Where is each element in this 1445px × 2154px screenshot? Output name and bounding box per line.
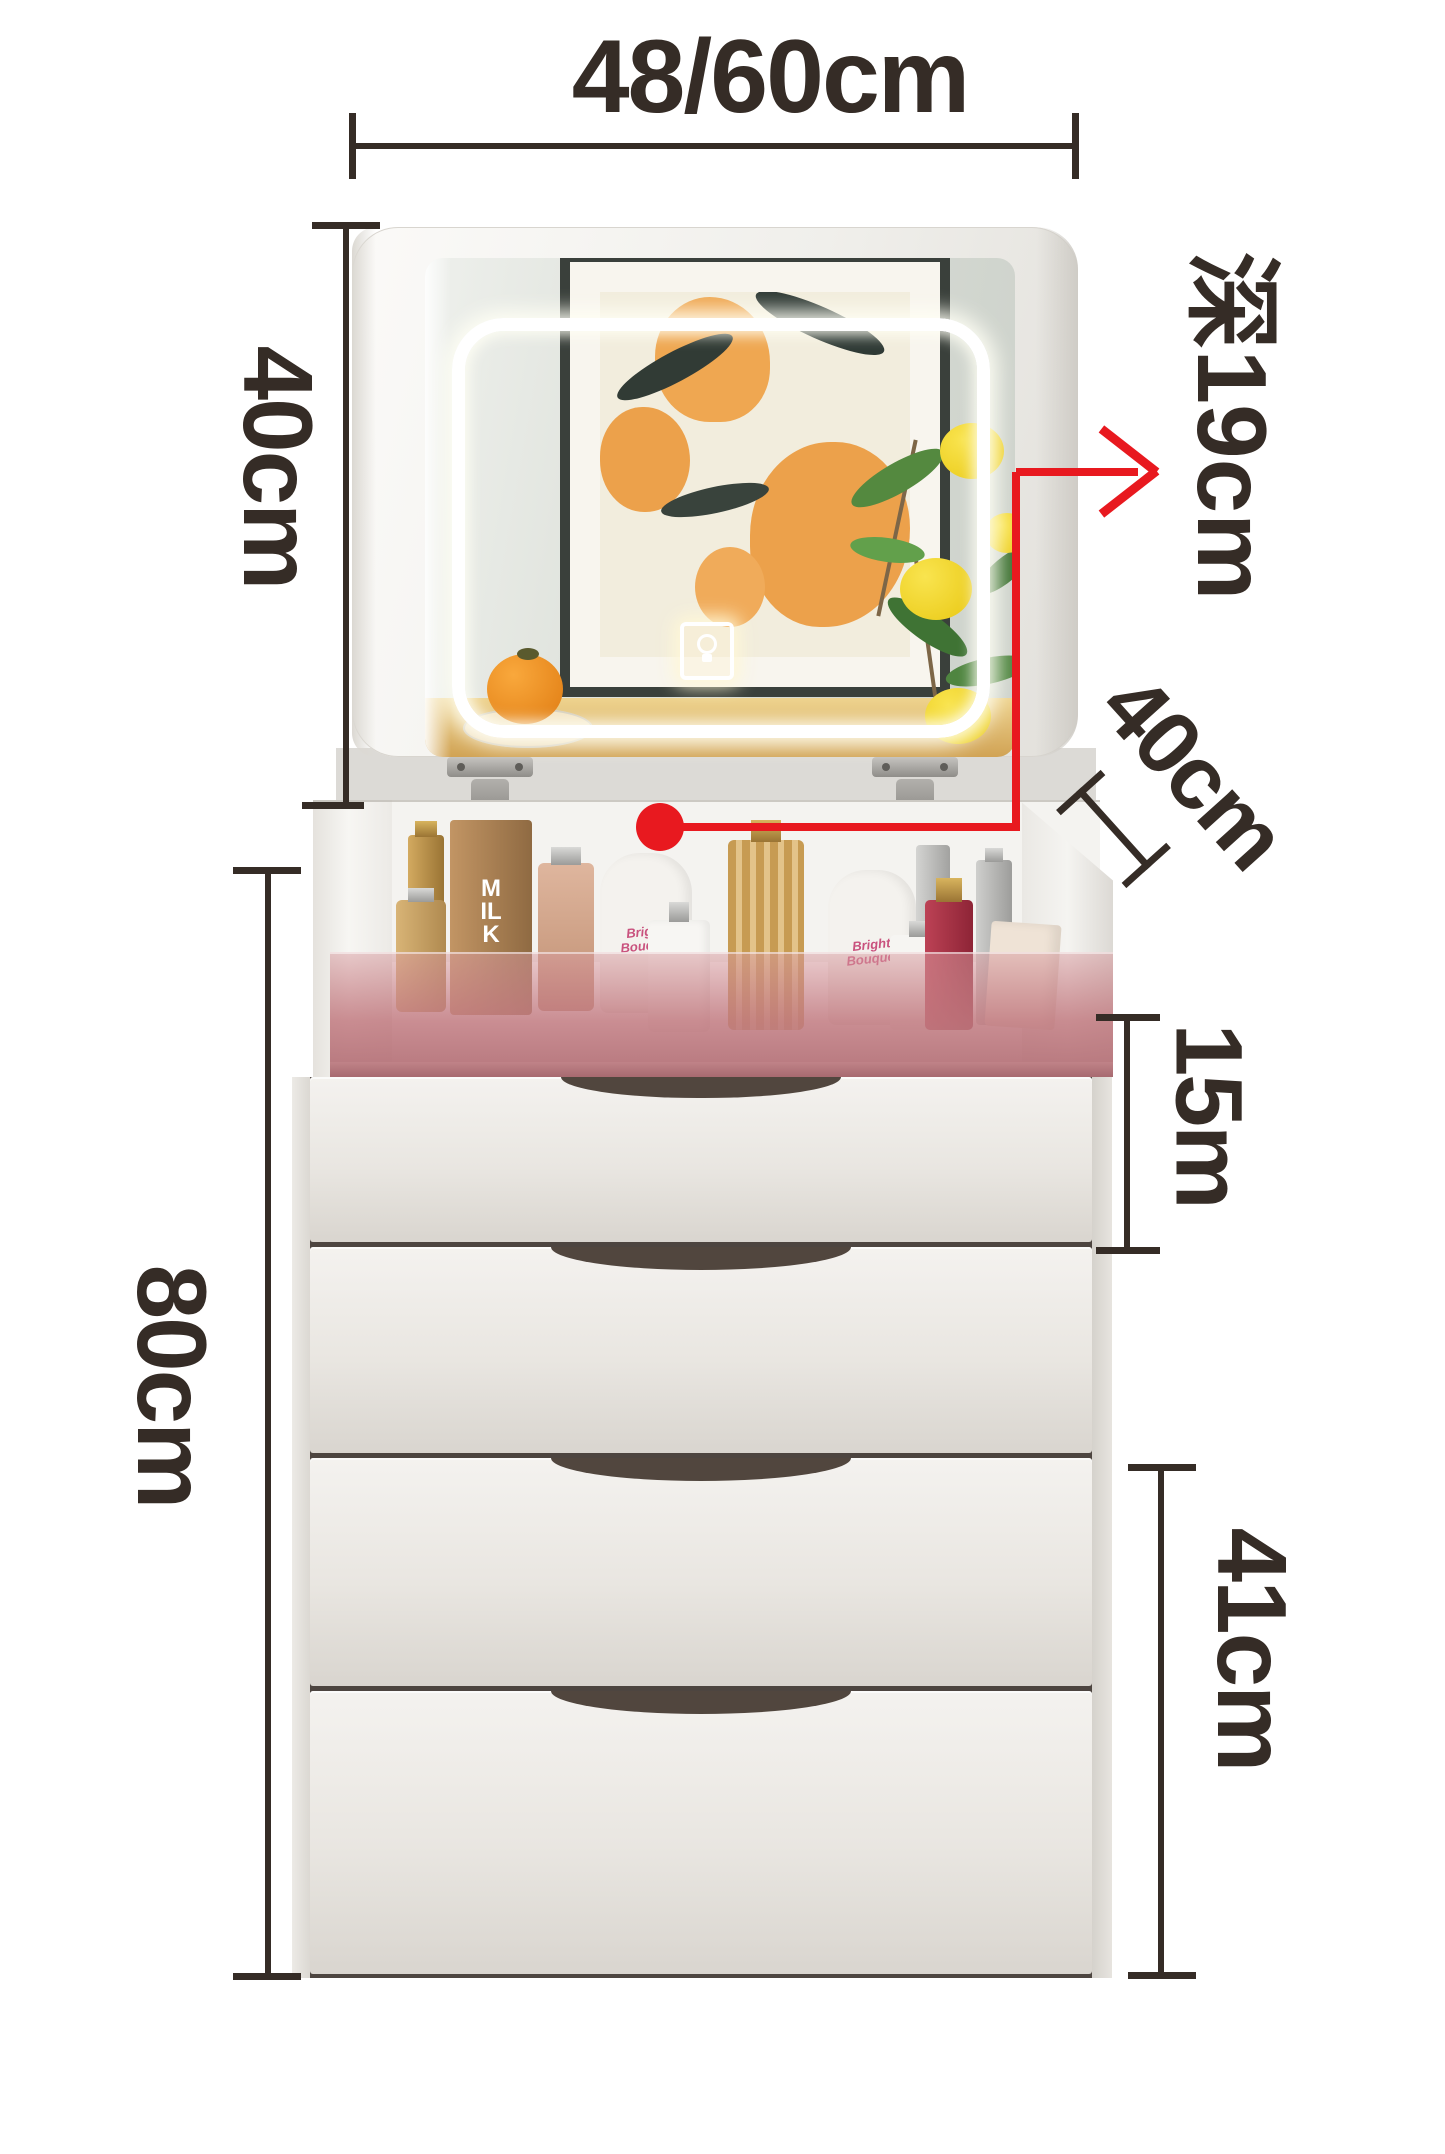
bottle-cap xyxy=(936,878,962,902)
bottle-cap xyxy=(408,888,434,902)
dim-line-top-width xyxy=(352,143,1078,149)
hinge-plate xyxy=(872,757,958,777)
dim-line-lower-drawers xyxy=(1158,1464,1164,1979)
hinge-plate xyxy=(447,757,533,777)
drawer-handle-notch[interactable] xyxy=(561,1077,841,1098)
hinge-screw xyxy=(940,763,948,771)
dim-label-mirror-height: 40cm xyxy=(229,317,327,617)
red-callout-line-vertical xyxy=(1012,472,1020,831)
chest-right-side xyxy=(1092,1077,1112,1978)
led-light-ring xyxy=(452,318,990,738)
lid-left-edge xyxy=(352,227,376,757)
dim-tick xyxy=(1096,1247,1160,1254)
drawer-3[interactable] xyxy=(310,1458,1092,1686)
dim-line-total-height xyxy=(265,867,271,1980)
red-callout-line-horizontal xyxy=(660,823,1020,831)
dim-tick xyxy=(233,1973,301,1980)
bottle-cap xyxy=(415,821,437,837)
drawer-1[interactable] xyxy=(310,1077,1092,1242)
dim-label-lower-drawers: 41cm xyxy=(1203,1479,1301,1819)
pump-top xyxy=(909,921,925,937)
pump-top xyxy=(669,902,689,922)
glass-front-edge xyxy=(330,1062,1113,1077)
drawer-2[interactable] xyxy=(310,1247,1092,1453)
carton-label: MILK xyxy=(478,878,504,946)
dim-label-top-width: 48/60cm xyxy=(420,25,1120,129)
hinge-screw xyxy=(457,763,465,771)
drawer-chest xyxy=(292,1077,1112,1978)
dim-tick xyxy=(1128,1972,1196,1979)
chest-left-side xyxy=(292,1077,310,1978)
spray-nozzle xyxy=(985,848,1003,862)
pink-glass-top xyxy=(330,952,1113,1077)
dim-line-mirror-height xyxy=(343,222,349,808)
dim-label-first-drawer: 15m xyxy=(1161,996,1256,1236)
dim-tick xyxy=(302,802,364,809)
drawer-handle-notch[interactable] xyxy=(551,1691,851,1714)
dim-line-first-drawer xyxy=(1124,1014,1130,1254)
hinge-screw xyxy=(882,763,890,771)
drawer-handle-notch[interactable] xyxy=(551,1458,851,1481)
bottle-cap xyxy=(551,847,581,865)
product-dimension-image: MILK Bright Bouquet Bright Bouquet xyxy=(0,0,1445,2154)
dim-tick xyxy=(349,113,356,179)
dim-label-total-height: 80cm xyxy=(123,1216,221,1556)
drawer-handle-notch[interactable] xyxy=(551,1247,851,1270)
drawer-4[interactable] xyxy=(310,1691,1092,1974)
dim-label-depth: 深19cm xyxy=(1183,236,1281,616)
red-arrow-shaft xyxy=(1016,468,1138,476)
hinge-screw xyxy=(515,763,523,771)
dim-tick xyxy=(1072,113,1079,179)
mirror-sheen xyxy=(425,258,451,757)
